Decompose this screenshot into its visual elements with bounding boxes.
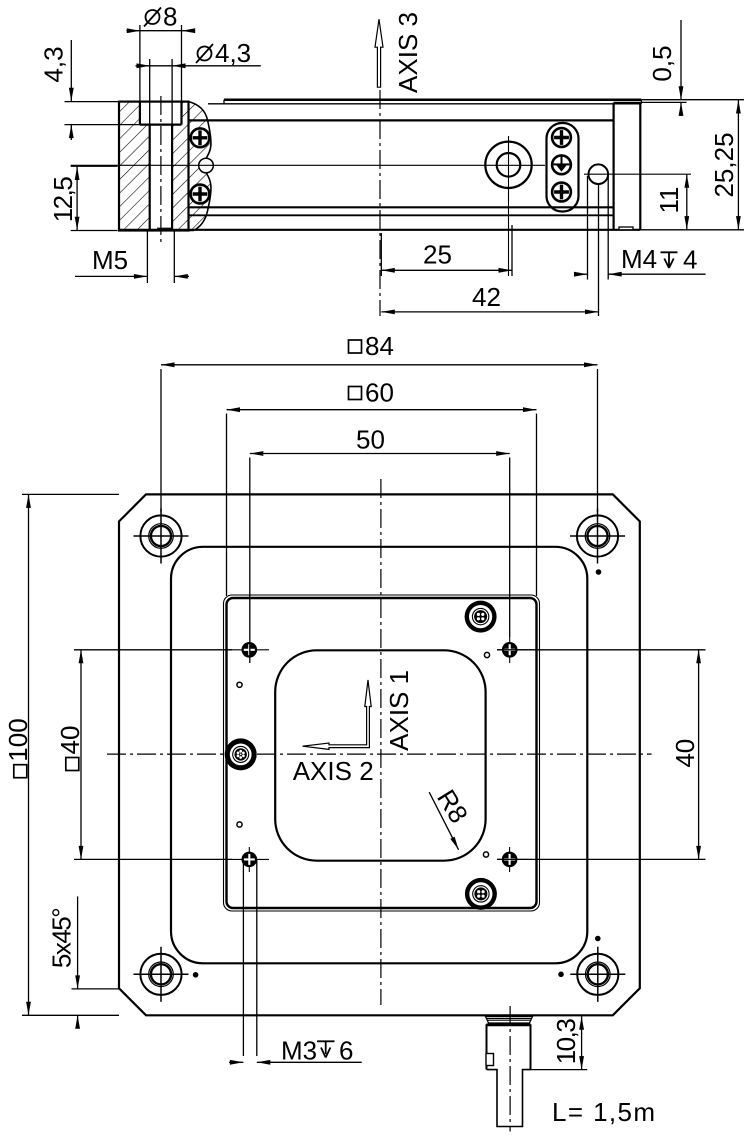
svg-text:42: 42 (472, 282, 501, 312)
svg-text:10,3: 10,3 (551, 1019, 581, 1065)
svg-text:8: 8 (163, 2, 177, 32)
svg-text:4,3: 4,3 (215, 38, 251, 68)
svg-text:40: 40 (670, 739, 700, 768)
svg-text:5x45°: 5x45° (47, 909, 77, 968)
svg-text:M4: M4 (621, 244, 657, 274)
svg-text:25: 25 (423, 240, 452, 270)
svg-text:25,25: 25,25 (709, 132, 739, 197)
svg-text:0,5: 0,5 (647, 45, 677, 81)
svg-text:11: 11 (654, 187, 684, 214)
svg-text:4,3: 4,3 (39, 46, 69, 82)
svg-text:AXIS 3: AXIS 3 (393, 12, 423, 93)
svg-text:84: 84 (365, 331, 394, 361)
svg-text:12,5: 12,5 (48, 177, 78, 223)
svg-text:L= 1,5m: L= 1,5m (552, 1097, 656, 1127)
svg-text:M3: M3 (281, 1036, 317, 1066)
svg-text:M5: M5 (92, 245, 128, 275)
svg-text:AXIS 1: AXIS 1 (384, 670, 414, 751)
svg-text:60: 60 (365, 378, 394, 408)
svg-text:4: 4 (683, 245, 697, 275)
svg-text:50: 50 (356, 425, 385, 455)
svg-text:AXIS 2: AXIS 2 (293, 756, 374, 786)
svg-text:6: 6 (339, 1036, 353, 1066)
